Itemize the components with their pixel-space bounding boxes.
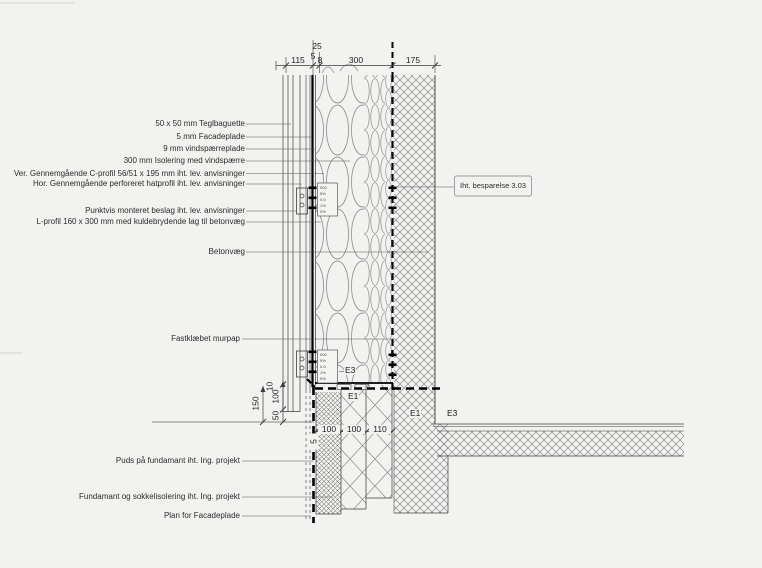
dim-25: 25 bbox=[309, 42, 325, 51]
detail-row: 0% bbox=[320, 209, 338, 215]
detail-callout-box-upper: 000 5% 0-0 1% 0% bbox=[320, 185, 338, 215]
callout-l-profil: L-profil 160 x 300 mm med kuldebrydende … bbox=[36, 217, 245, 227]
callout-facadeplade: 5 mm Facadeplade bbox=[177, 132, 245, 142]
detail-callout-box-lower: 000 5% 0-0 1% 0% bbox=[320, 352, 338, 382]
zone-e3-upper: E3 bbox=[344, 366, 356, 375]
dim-100b: 100 bbox=[343, 425, 365, 434]
callout-betonvaeg: Betonvæg bbox=[209, 247, 245, 257]
callout-fundamant: Fundamant og sokkelisolering iht. Ing. p… bbox=[79, 492, 240, 502]
zone-e3-lower: E3 bbox=[446, 409, 458, 418]
zone-e1-lower: E1 bbox=[409, 409, 421, 418]
callout-hatprofil: Hor. Gennemgående perforeret hatprofil i… bbox=[33, 179, 245, 189]
dim-5-sokkel: 5 bbox=[310, 434, 319, 450]
vertical-dimension-chains bbox=[152, 381, 314, 425]
insulation-hatch bbox=[316, 64, 392, 383]
detail-row: 0% bbox=[320, 376, 338, 382]
concrete-hatch bbox=[394, 75, 684, 513]
callout-c-profil: Ver. Gennemgående C-profil 56/51 x 195 m… bbox=[14, 169, 245, 179]
dim-300: 300 bbox=[344, 56, 368, 65]
dim-150: 150 bbox=[252, 392, 261, 416]
facade-layer-lines bbox=[283, 75, 316, 520]
dim-50: 50 bbox=[272, 406, 281, 426]
callout-vindspaerreplade: 9 mm vindspærreplade bbox=[163, 144, 245, 154]
section-drawing-canvas bbox=[0, 0, 762, 568]
besparelse-note: Iht. besparelse 3.03 bbox=[456, 176, 530, 196]
callout-puds: Puds på fundamant iht. Ing. projekt bbox=[116, 456, 240, 466]
callout-teglbaguette: 50 x 50 mm Teglbaguette bbox=[155, 119, 245, 129]
wall-section-detail-drawing: 50 x 50 mm Teglbaguette 5 mm Facadeplade… bbox=[0, 0, 762, 568]
dim-10: 10 bbox=[266, 376, 275, 398]
callout-isolering: 300 mm Isolering med vindspærre bbox=[124, 156, 245, 166]
dim-110: 110 bbox=[369, 425, 391, 434]
foundation-insulation-hatch bbox=[316, 385, 392, 514]
callout-plan-facadeplade: Plan for Facadeplade bbox=[164, 511, 240, 521]
callout-murpap: Fastklæbet murpap bbox=[171, 334, 240, 344]
dim-8: 8 bbox=[312, 56, 328, 65]
callout-beslag: Punktvis monteret beslag iht. lev. anvis… bbox=[85, 206, 245, 216]
dim-175: 175 bbox=[401, 56, 425, 65]
zone-e1-upper: E1 bbox=[347, 392, 359, 401]
dim-100a: 100 bbox=[318, 425, 340, 434]
